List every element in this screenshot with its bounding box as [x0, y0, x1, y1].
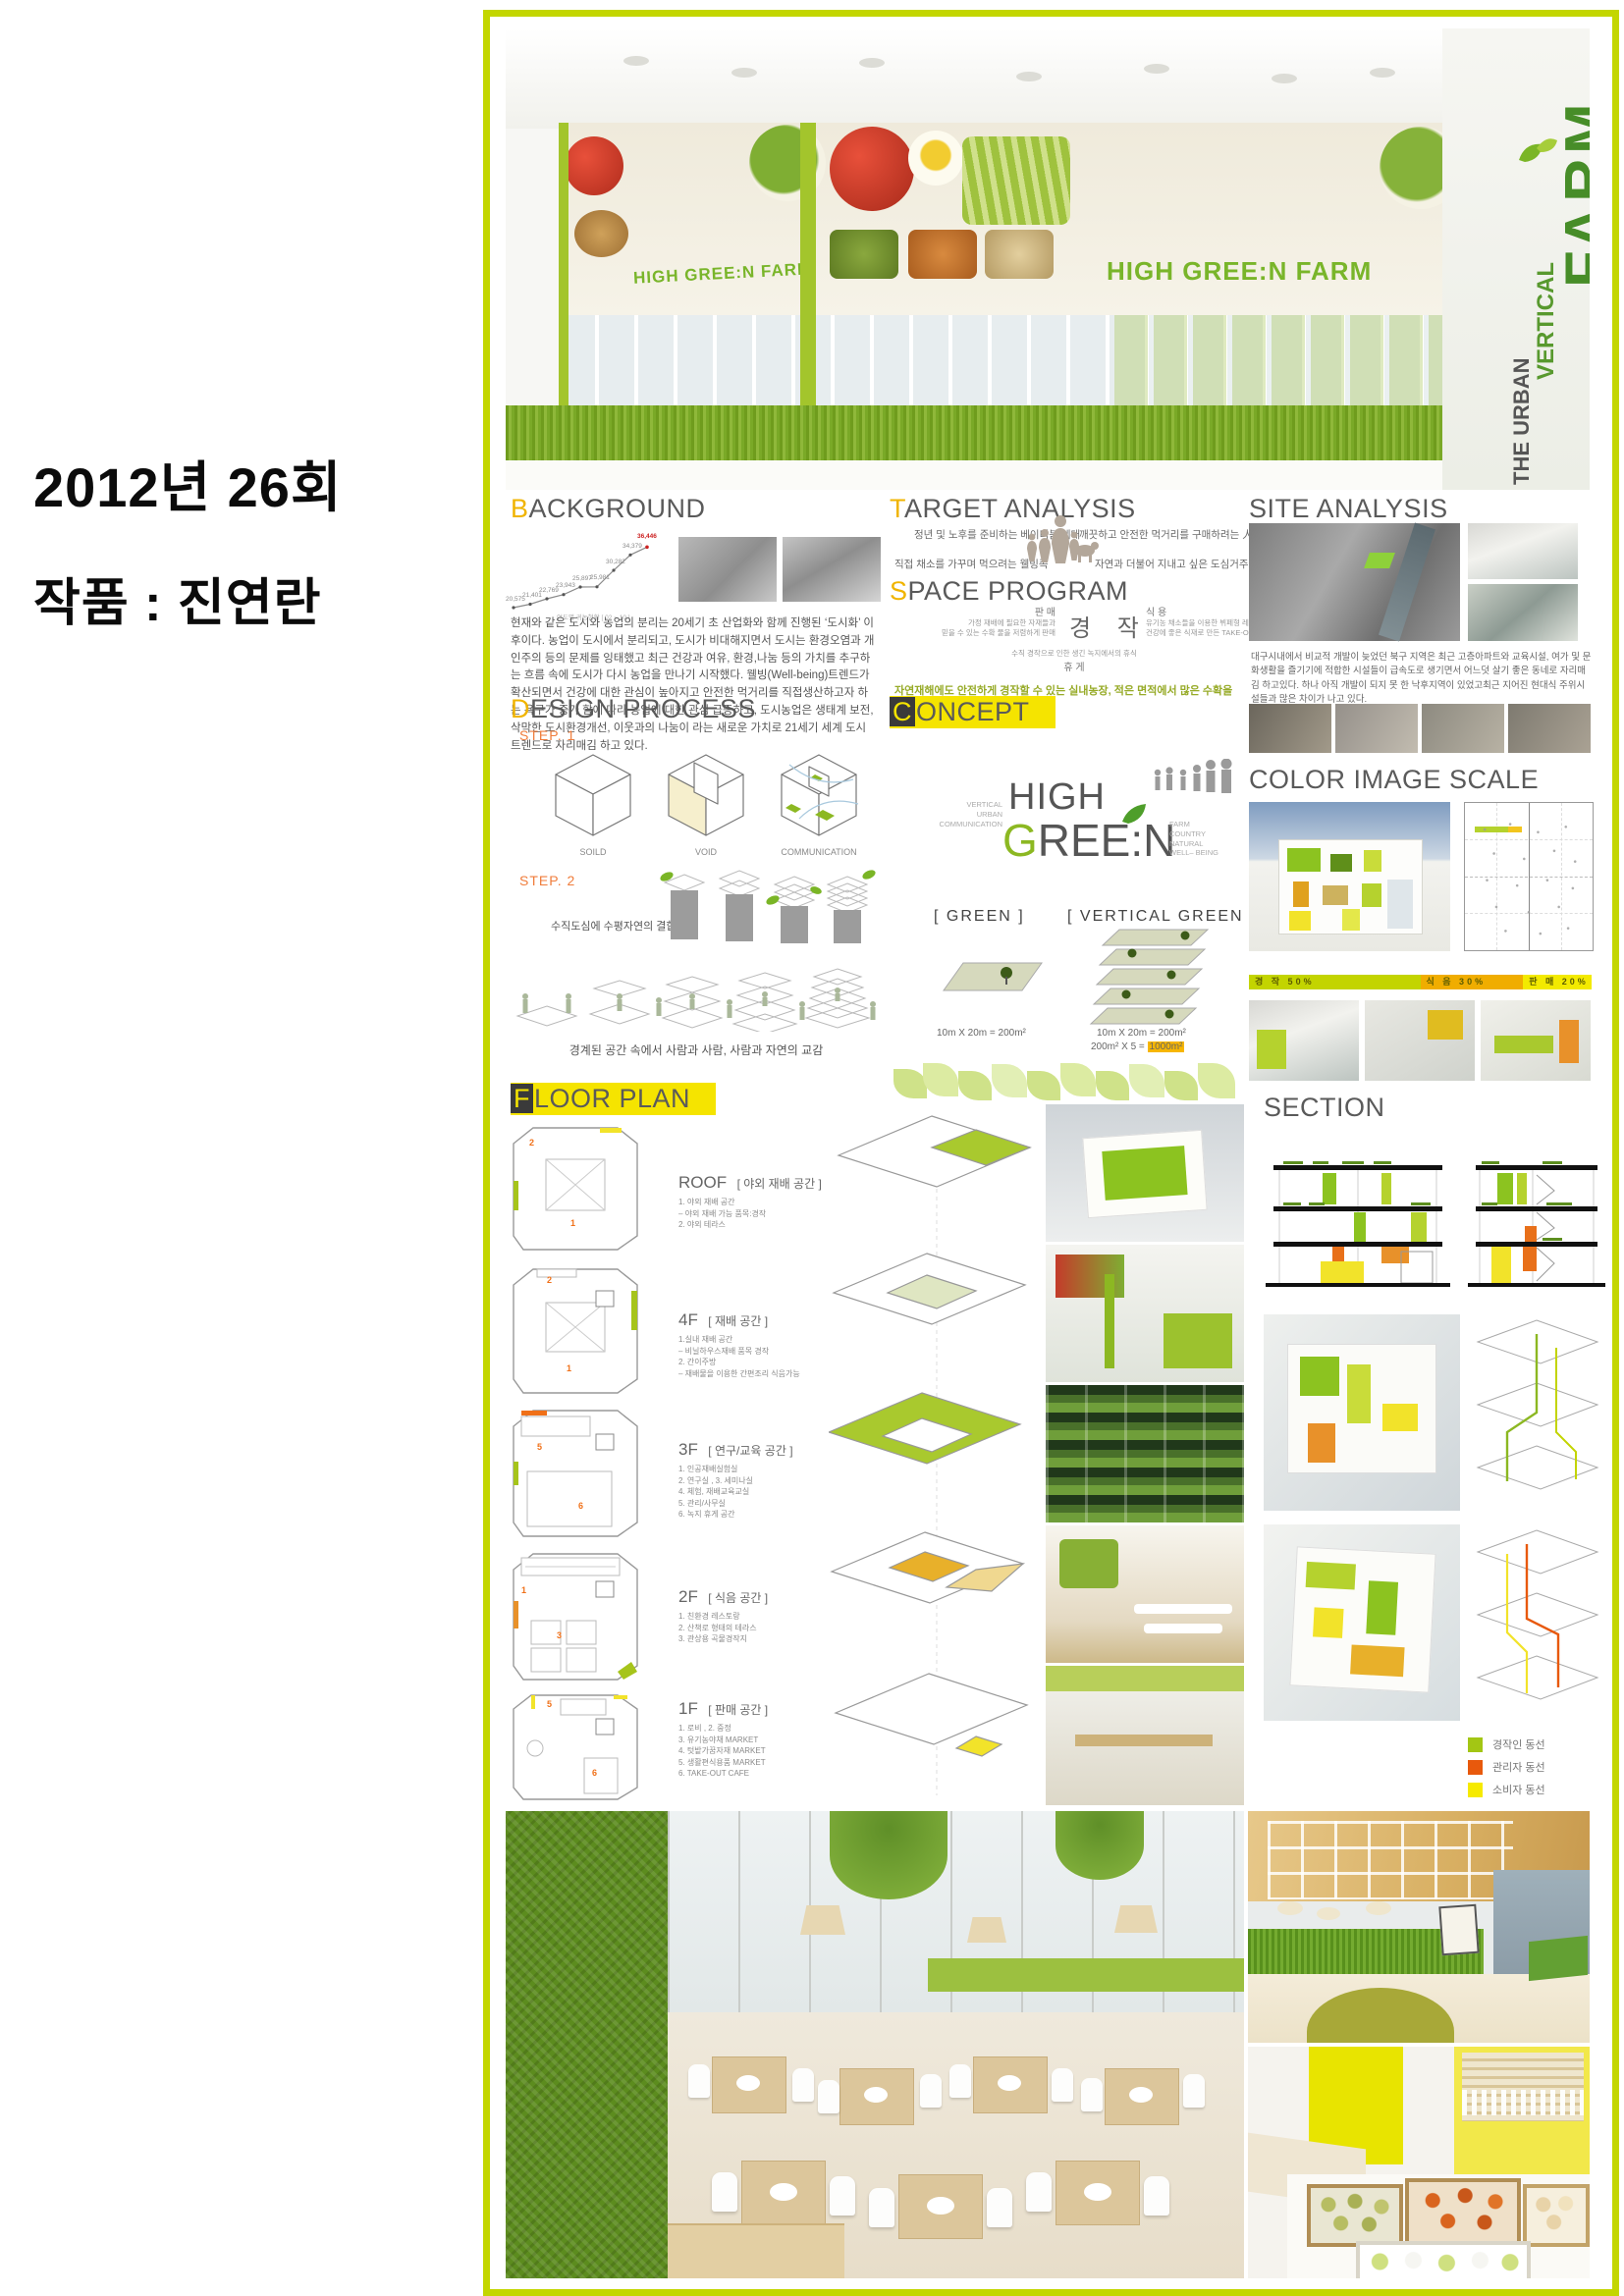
logo-right-words: FARM COUNTRY NATURAL WELL– BEING: [1169, 820, 1238, 858]
logo-high: HIGH: [1008, 776, 1106, 819]
orange-accent: [1559, 1020, 1579, 1063]
green-floor: [1164, 1313, 1232, 1368]
pendant-lamp: [1114, 1905, 1158, 1933]
hedge-through-window: [928, 1958, 1244, 1992]
vertical-green-planes-diagram: [1075, 928, 1232, 1034]
hanging-plant: [1056, 1811, 1144, 1880]
counter: [1075, 1735, 1213, 1746]
plan-drawing: [502, 1546, 649, 1685]
plan-2f: 3 1: [502, 1546, 649, 1685]
chart-label: 34,379: [623, 543, 642, 550]
banner-text-right: HIGH GREE:N FARM: [1107, 256, 1372, 287]
leaf-icon: [1517, 134, 1558, 170]
leaf-icon: [1120, 802, 1150, 826]
plan-mark: 5: [547, 1699, 552, 1709]
target-item-3: 깨끗하고 안전한 먹거리를 구매하려는 人: [1079, 527, 1253, 542]
plan-mark: 6: [592, 1768, 597, 1778]
logo-left-words: VERTICAL URBAN COMMUNICATION: [912, 800, 1002, 828]
orange-block: [1308, 1423, 1335, 1463]
vgreen-area-text-1: 10m X 20m = 200m²: [1097, 1028, 1186, 1039]
legend-item-consumer: 소비자 동선: [1468, 1782, 1545, 1797]
plate: [927, 2197, 954, 2215]
building-mass: [1278, 839, 1423, 934]
green-patch: [1330, 854, 1352, 872]
orange-patch: [1293, 881, 1309, 907]
chair: [987, 2188, 1012, 2227]
work-title: 작품 : 진연란: [33, 561, 321, 635]
render-roof-aerial: [1046, 1104, 1244, 1242]
cube-communication-label: COMMUNICATION: [770, 847, 868, 857]
legend-swatch-consumer: [1468, 1783, 1483, 1797]
building-volume: [1287, 1344, 1436, 1473]
green-block: [1366, 1580, 1398, 1634]
bar-segment-sale: 판 매 20%: [1523, 975, 1592, 989]
bar-segment-cultivation: 경 작 50%: [1249, 975, 1421, 989]
food-image: [908, 230, 977, 279]
plan-3f: 6 5: [502, 1403, 649, 1542]
green-block: [1306, 1562, 1356, 1590]
chair: [1081, 2078, 1103, 2111]
urban-farm-photo: [783, 537, 881, 602]
greens-image: [830, 230, 898, 279]
spotlight-icon: [1144, 64, 1169, 74]
concept-logo: VERTICAL URBAN COMMUNICATION HIGH GREE:N…: [912, 759, 1236, 892]
plate: [770, 2183, 797, 2201]
color-scale-chart: [1464, 802, 1594, 951]
space-program-title: SPACE PROGRAM: [890, 576, 1128, 607]
plan-mark: 2: [547, 1275, 552, 1285]
exploded-axonometric: [829, 1108, 1040, 1805]
plan-mark: 1: [567, 1363, 571, 1373]
section-drawing-2: [1468, 1136, 1605, 1301]
plan-roof: 1 2: [502, 1122, 649, 1255]
celery-image: [962, 136, 1070, 225]
floor-plan-title: FLOOR PLAN: [511, 1083, 716, 1115]
plan-mark: 5: [537, 1442, 542, 1452]
plate: [1084, 2183, 1111, 2201]
old-area-photo-1: [1249, 704, 1331, 753]
bar-segment-food: 식 음 30%: [1421, 975, 1524, 989]
plan-mark: 1: [570, 1218, 575, 1228]
yellow-block: [1313, 1607, 1344, 1638]
pendant-lamp: [967, 1917, 1006, 1943]
return-to-farm-chart: 20,575 21,401 22,769 23,943 25,897 25,98…: [506, 531, 671, 621]
yellow-patch: [1342, 909, 1360, 931]
plan-1f: 5 6: [502, 1689, 649, 1805]
legend-label-consumer: 소비자 동선: [1492, 1782, 1545, 1797]
program-ratio-bar: 경 작 50% 식 음 30% 판 매 20%: [1249, 975, 1592, 989]
chair: [949, 2064, 971, 2098]
green-patch: [1287, 848, 1321, 872]
plan-mark: 6: [578, 1501, 583, 1511]
produce-bin-radish: [1356, 2241, 1531, 2278]
leaves-band: [890, 1059, 1239, 1104]
chair: [1144, 2176, 1169, 2216]
plan-drawing: [502, 1122, 649, 1255]
green-column: [1105, 1274, 1114, 1368]
table: [898, 2174, 983, 2239]
program-rest: 수직 경작으로 인한 생긴 녹지에서의 휴식 휴 게: [961, 649, 1187, 673]
render-cutaway-1: [1264, 1314, 1460, 1511]
chair: [792, 2068, 814, 2102]
plan-drawing: [502, 1403, 649, 1542]
presentation-board: HIGH GREE:N FARM HIGH GREE:N FARM THE UR…: [483, 10, 1619, 2296]
step-2-label: STEP. 2: [519, 873, 575, 888]
food-image: [574, 210, 628, 257]
vertical-title-the-urban: THE URBAN: [1509, 323, 1535, 485]
scatter-words: [1471, 811, 1587, 944]
green-label: [ GREEN ]: [934, 908, 1025, 926]
green-patch: [1362, 883, 1381, 907]
table: [1056, 2161, 1140, 2225]
yellow-block: [1382, 1404, 1418, 1431]
bottles: [1462, 2090, 1584, 2115]
old-area-photo-4: [1508, 704, 1591, 753]
hero-ceiling: [506, 28, 1590, 129]
pendant-lamp: [1366, 1901, 1391, 1915]
interior-photo-3: [1481, 1000, 1591, 1081]
chair: [818, 2080, 839, 2113]
building-render-image: [1249, 802, 1450, 951]
site-body: 대구시내에서 비교적 개발이 늦었던 북구 지역은 최근 고층아파트와 교육시설…: [1251, 651, 1593, 707]
section-drawing-1: [1264, 1136, 1452, 1301]
legend-item-manager: 관리자 동선: [1468, 1759, 1545, 1775]
green-area-text: 10m X 20m = 200m²: [937, 1028, 1026, 1039]
river: [1379, 523, 1435, 642]
poster-page: 2012년 26회 작품 : 진연란 HIGH GREE:N FAR: [0, 0, 1624, 2296]
plate: [736, 2075, 760, 2091]
floor-desc-2f: 2F [ 식음 공간 ] 1. 친환경 레스토랑 2. 산책로 형태의 테라스 …: [678, 1587, 826, 1645]
legend-swatch-farmer: [1468, 1737, 1483, 1752]
interior-photo-2: [1365, 1000, 1475, 1081]
hero-render-image: HIGH GREE:N FARM HIGH GREE:N FARM THE UR…: [506, 28, 1590, 490]
yellow-patch: [1289, 911, 1311, 931]
green-ceiling: [1046, 1666, 1244, 1691]
building-top: [1082, 1130, 1207, 1218]
pendant-lamp: [1277, 1901, 1303, 1915]
plan-drawing: [502, 1689, 649, 1805]
circulation-axon-1: [1468, 1314, 1605, 1511]
pendant-lamp: [800, 1905, 845, 1935]
chart-label: 25,897: [572, 575, 592, 582]
wood-patch: [1323, 885, 1348, 905]
old-area-photo-2: [1335, 704, 1418, 753]
program-rest-title: 휴 게: [961, 659, 1187, 673]
cube-void-label: VOID: [657, 847, 755, 857]
green-plane-diagram: [924, 943, 1061, 1008]
chair: [712, 2172, 737, 2212]
step-1-label: STEP. 1: [519, 727, 575, 743]
plant-wall: [1059, 1539, 1118, 1588]
cube-communication-diagram: [770, 745, 868, 843]
egg-image: [908, 131, 963, 186]
street-photo-1: [1468, 523, 1578, 579]
chair: [869, 2188, 894, 2227]
chart-label: 23,943: [556, 582, 575, 589]
step2-caption-1: 수직도심에 수평자연의 결합: [551, 918, 677, 934]
green-accent: [1257, 1030, 1286, 1069]
target-item-4: 자연과 더불어 지내고 싶은 도심거주민: [1095, 557, 1258, 571]
concept-title: CONCEPT: [890, 696, 1056, 728]
rack-frames: [1046, 1385, 1244, 1522]
table: [1105, 2068, 1179, 2125]
legend-label-manager: 관리자 동선: [1492, 1759, 1545, 1775]
floor-desc-4f: 4F [ 재배 공간 ] 1.실내 재배 공간 – 비닐하우스재배 품목 경작 …: [678, 1310, 826, 1379]
interior-photo-1: [1249, 1000, 1359, 1081]
plan-mark: 3: [557, 1630, 562, 1640]
spotlight-icon: [1016, 72, 1042, 81]
spotlight-icon: [731, 68, 757, 78]
plan-4f: 1 2: [502, 1261, 649, 1399]
render-cafe: [1046, 1666, 1244, 1805]
produce-table: [1287, 2174, 1590, 2278]
green-roof: [1102, 1146, 1187, 1201]
green-accent: [1494, 1036, 1553, 1053]
vgreen-area-text-2: 200m² X 5 = 1000m²: [1091, 1041, 1184, 1052]
green-block: [1347, 1364, 1371, 1423]
program-sale: 판 매 가정 재배에 필요한 자재들과 믿을 수 있는 수확 물을 저렴하게 판…: [930, 604, 1056, 638]
plate: [1129, 2087, 1153, 2103]
people-icon: [1150, 759, 1236, 800]
chair: [1026, 2172, 1052, 2212]
hero-floor: [506, 460, 1590, 490]
chair: [830, 2176, 855, 2216]
plan-drawing: [502, 1261, 649, 1399]
table: [973, 2056, 1048, 2113]
pendant-lamp: [1317, 1907, 1340, 1920]
circulation-axon-2: [1468, 1524, 1605, 1721]
site-analysis-title: SITE ANALYSIS: [1249, 494, 1448, 524]
chair: [688, 2064, 710, 2098]
white-frame-grid: [1268, 1821, 1513, 1899]
chair: [920, 2074, 942, 2108]
farm-field-photo: [678, 537, 777, 602]
tomato-image: [565, 136, 623, 195]
spotlight-icon: [623, 56, 649, 66]
green-column: [559, 123, 568, 417]
render-cutaway-2: [1264, 1524, 1460, 1721]
cube-solid-diagram: [544, 745, 642, 843]
render-vertical-racks: [1046, 1385, 1244, 1522]
legend-label-farmer: 경작인 동선: [1492, 1736, 1545, 1752]
aerial-site-photo: [1249, 523, 1460, 641]
floor-desc-3f: 3F [ 연구/교육 공간 ] 1. 인공재배실험실 2. 연구실 , 3. 세…: [678, 1440, 826, 1521]
plan-mark: 2: [529, 1138, 534, 1148]
chair: [1183, 2074, 1205, 2108]
program-sale-desc: 가정 재배에 필요한 자재들과 믿을 수 있는 수확 물을 저렴하게 판매: [930, 618, 1056, 638]
chart-label: 30,282: [606, 559, 625, 565]
moss-wall: [506, 1811, 668, 2278]
program-sale-title: 판 매: [930, 604, 1056, 618]
program-center: 경 작: [1069, 609, 1149, 643]
hanging-plant: [830, 1811, 947, 1899]
vgreen-total-highlight: 1000m²: [1148, 1041, 1185, 1052]
food-image: [985, 230, 1054, 279]
render-grass-room: [1248, 1811, 1590, 2043]
table: [1144, 1624, 1222, 1633]
render-restaurant: [1046, 1525, 1244, 1663]
tower-stacking-diagram: [659, 867, 881, 947]
spotlight-icon: [859, 58, 885, 68]
cube-solid-label: SOILD: [544, 847, 642, 857]
vertical-green-label: [ VERTICAL GREEN ]: [1067, 908, 1256, 926]
table: [741, 2161, 826, 2225]
color-image-scale-title: COLOR IMAGE SCALE: [1249, 765, 1539, 795]
green-patch: [1364, 850, 1381, 872]
render-market: [1248, 2047, 1590, 2278]
spotlight-icon: [1370, 68, 1395, 78]
chart-label: 25,981: [590, 574, 610, 581]
green-counter: [1529, 1936, 1588, 1981]
green-block: [1300, 1357, 1339, 1396]
spotlight-icon: [1272, 74, 1297, 83]
plate: [998, 2075, 1021, 2091]
render-interior-greenhouse: [1046, 1245, 1244, 1382]
plate: [864, 2087, 888, 2103]
chair: [1052, 2068, 1073, 2102]
floor-desc-roof: ROOF [ 야외 재배 공간 ] 1. 야외 재배 공간 – 야외 재배 가능…: [678, 1173, 826, 1231]
table: [1134, 1604, 1232, 1614]
floor-desc-1f: 1F [ 판매 공간 ] 1. 로비 , 2. 중정 3. 유기농야채 MARK…: [678, 1699, 826, 1780]
foreground-table: [668, 2223, 844, 2278]
plan-mark: 1: [521, 1585, 526, 1595]
event-title: 2012년 26회: [33, 444, 342, 523]
table: [712, 2056, 786, 2113]
yellow-accent: [1428, 1010, 1463, 1040]
render-cafeteria: [506, 1811, 1244, 2278]
easel-sign: [1438, 1904, 1479, 1956]
section-title: SECTION: [1264, 1093, 1385, 1123]
tomato-image: [830, 127, 914, 211]
produce-bin-onions: [1523, 2184, 1590, 2247]
circulation-legend: 경작인 동선 관리자 동선 소비자 동선: [1468, 1736, 1545, 1804]
design-process-title: DESIGN PROCESS: [511, 694, 756, 724]
people-nature-diagram: [512, 961, 877, 1032]
hero-grass: [506, 405, 1590, 462]
table: [839, 2068, 914, 2125]
step2-caption-2: 경계된 공간 속에서 사람과 사람, 사람과 자연의 교감: [549, 1041, 843, 1058]
green-column: [800, 123, 816, 417]
legend-item-farmer: 경작인 동선: [1468, 1736, 1545, 1752]
site-marker: [1364, 553, 1395, 568]
produce-bin-green: [1307, 2184, 1403, 2247]
produce-bin-carrots: [1405, 2178, 1521, 2247]
building-volume: [1289, 1546, 1435, 1692]
glass-patch: [1387, 880, 1413, 929]
old-area-photo-3: [1422, 704, 1504, 753]
program-rest-desc: 수직 경작으로 인한 생긴 녹지에서의 휴식: [961, 649, 1187, 659]
background-title: BACKGROUND: [511, 494, 706, 524]
chart-label-final: 36,446: [637, 533, 657, 540]
orange-block: [1350, 1644, 1404, 1677]
legend-swatch-manager: [1468, 1760, 1483, 1775]
street-photo-2: [1468, 584, 1578, 641]
cube-void-diagram: [657, 745, 755, 843]
